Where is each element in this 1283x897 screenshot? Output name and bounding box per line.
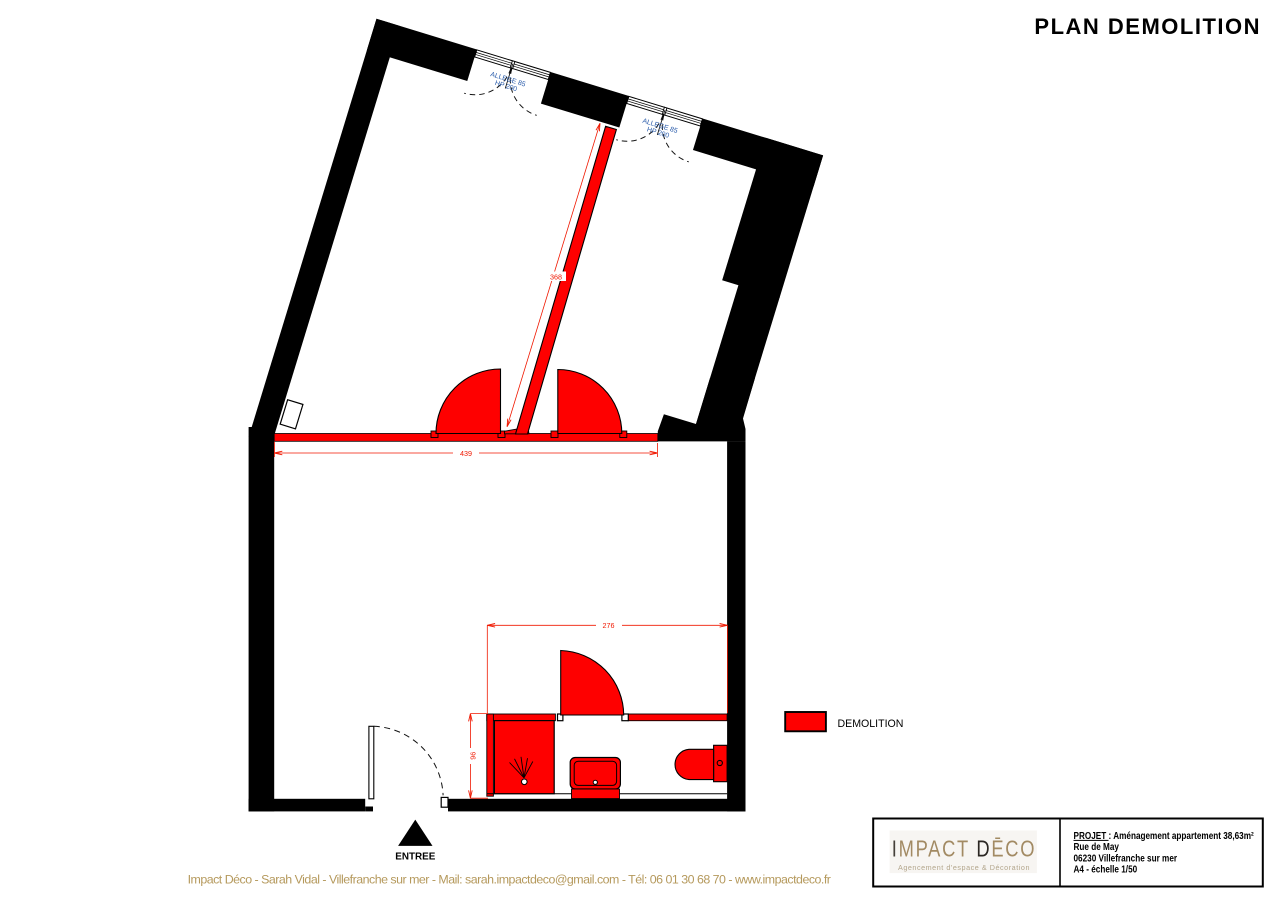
svg-text:06230 Villefranche sur mer: 06230 Villefranche sur mer (1074, 853, 1178, 864)
svg-text:368: 368 (550, 272, 562, 281)
svg-text:ENTREE: ENTREE (395, 852, 435, 863)
svg-text:276: 276 (603, 621, 615, 630)
svg-text:DEMOLITION: DEMOLITION (838, 718, 904, 730)
svg-text:Agencement d'espace & Décorati: Agencement d'espace & Décoration (898, 863, 1030, 872)
svg-text:A4 - échelle 1/50: A4 - échelle 1/50 (1074, 864, 1138, 875)
svg-text:Impact Déco - Sarah Vidal - Vi: Impact Déco - Sarah Vidal - Villefranche… (188, 873, 831, 887)
svg-text:96: 96 (469, 752, 478, 760)
svg-text:Rue de May: Rue de May (1074, 841, 1120, 852)
svg-text:439: 439 (460, 449, 472, 458)
svg-text:PROJET : Aménagement appartem: PROJET : Aménagement appartement 38,63m² (1074, 830, 1254, 841)
svg-text:IMPACT DĒCO: IMPACT DĒCO (892, 836, 1036, 862)
svg-text:PLAN DEMOLITION: PLAN DEMOLITION (1034, 14, 1261, 39)
